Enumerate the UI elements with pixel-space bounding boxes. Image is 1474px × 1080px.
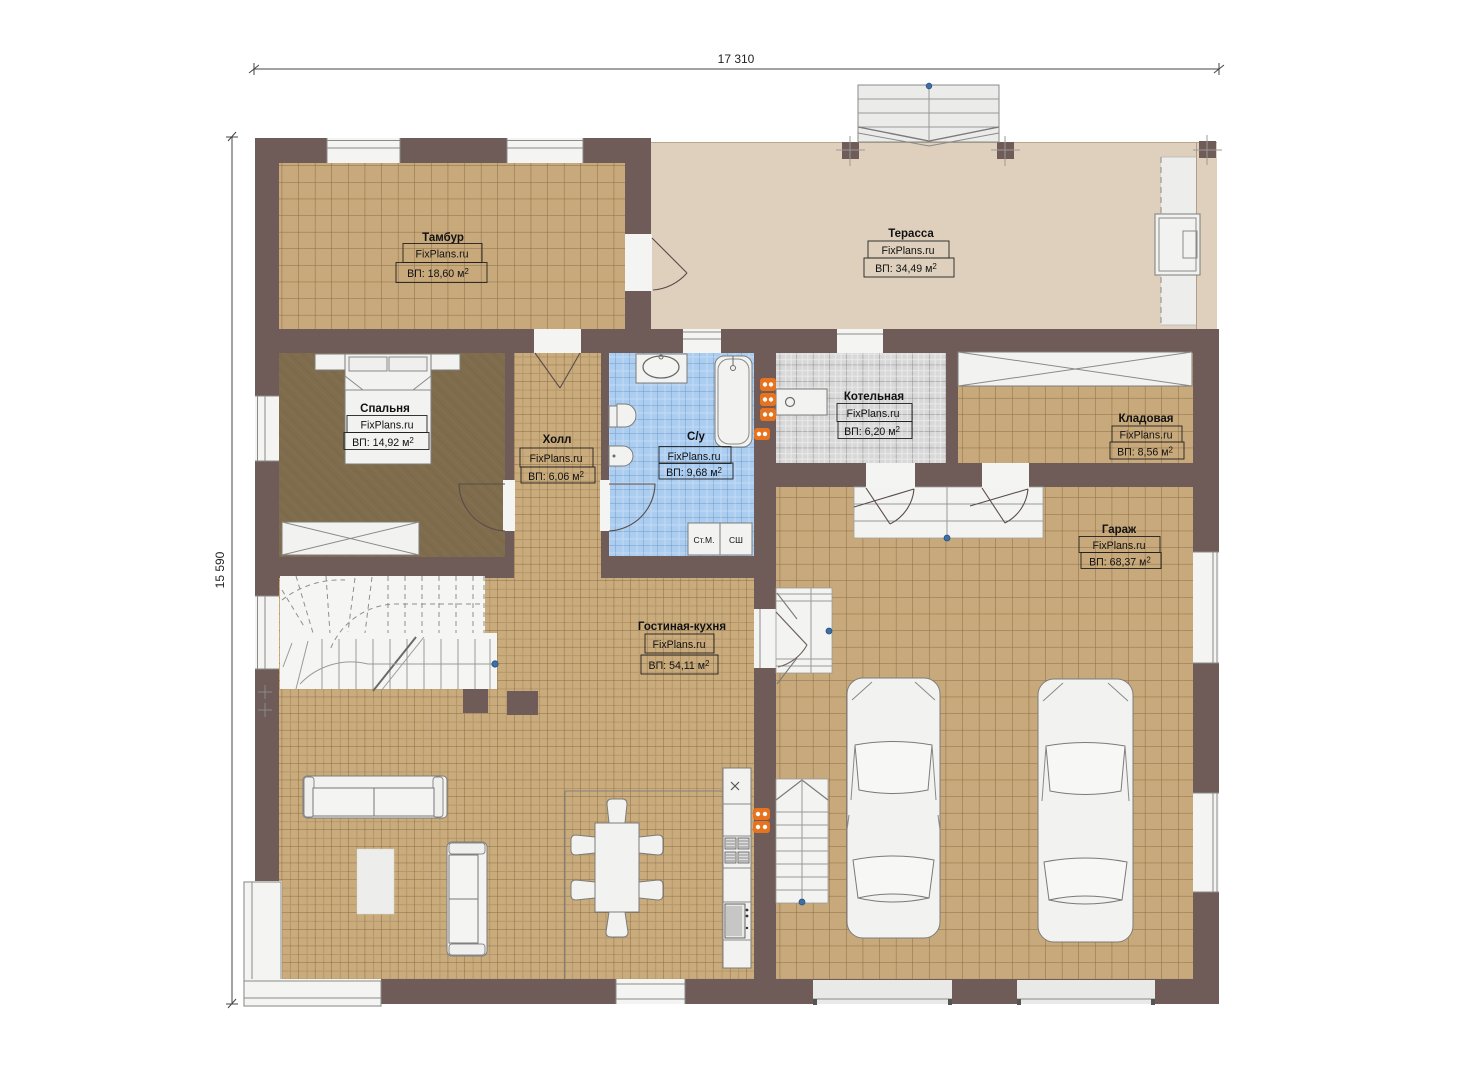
svg-text:С/у: С/у: [687, 431, 706, 443]
svg-text:Кладовая: Кладовая: [1118, 413, 1173, 425]
svg-text:FixPlans.ru: FixPlans.ru: [653, 639, 706, 651]
svg-text:Ст.М.: Ст.М.: [694, 535, 715, 545]
svg-text:FixPlans.ru: FixPlans.ru: [1093, 540, 1146, 552]
svg-text:15 590: 15 590: [213, 551, 227, 588]
svg-text:Гараж: Гараж: [1102, 524, 1137, 536]
svg-text:Спальня: Спальня: [360, 403, 410, 415]
svg-text:FixPlans.ru: FixPlans.ru: [1120, 430, 1173, 442]
svg-text:СШ: СШ: [729, 535, 743, 545]
svg-text:FixPlans.ru: FixPlans.ru: [668, 451, 721, 463]
svg-text:ВП: 34,49 м2: ВП: 34,49 м2: [875, 262, 937, 275]
svg-text:Тамбур: Тамбур: [422, 232, 464, 244]
svg-text:ВП: 9,68 м2: ВП: 9,68 м2: [666, 466, 722, 479]
svg-text:Терасса: Терасса: [888, 228, 934, 240]
svg-text:ВП: 54,11 м2: ВП: 54,11 м2: [649, 659, 711, 672]
svg-text:ВП: 6,06 м2: ВП: 6,06 м2: [528, 470, 584, 483]
svg-text:Котельная: Котельная: [844, 391, 904, 403]
svg-text:Гостиная-кухня: Гостиная-кухня: [638, 621, 726, 633]
svg-text:ВП: 14,92 м2: ВП: 14,92 м2: [352, 436, 414, 449]
svg-text:FixPlans.ru: FixPlans.ru: [847, 408, 900, 420]
svg-text:FixPlans.ru: FixPlans.ru: [882, 245, 935, 257]
svg-text:ВП: 6,20 м2: ВП: 6,20 м2: [844, 425, 900, 438]
svg-text:Холл: Холл: [543, 434, 572, 446]
svg-text:FixPlans.ru: FixPlans.ru: [530, 453, 583, 465]
svg-text:17 310: 17 310: [718, 52, 755, 66]
svg-text:ВП: 18,60 м2: ВП: 18,60 м2: [407, 267, 469, 280]
svg-text:ВП: 68,37 м2: ВП: 68,37 м2: [1089, 556, 1151, 569]
svg-text:ВП: 8,56 м2: ВП: 8,56 м2: [1117, 446, 1173, 459]
svg-text:FixPlans.ru: FixPlans.ru: [416, 249, 469, 261]
svg-text:FixPlans.ru: FixPlans.ru: [361, 420, 414, 432]
